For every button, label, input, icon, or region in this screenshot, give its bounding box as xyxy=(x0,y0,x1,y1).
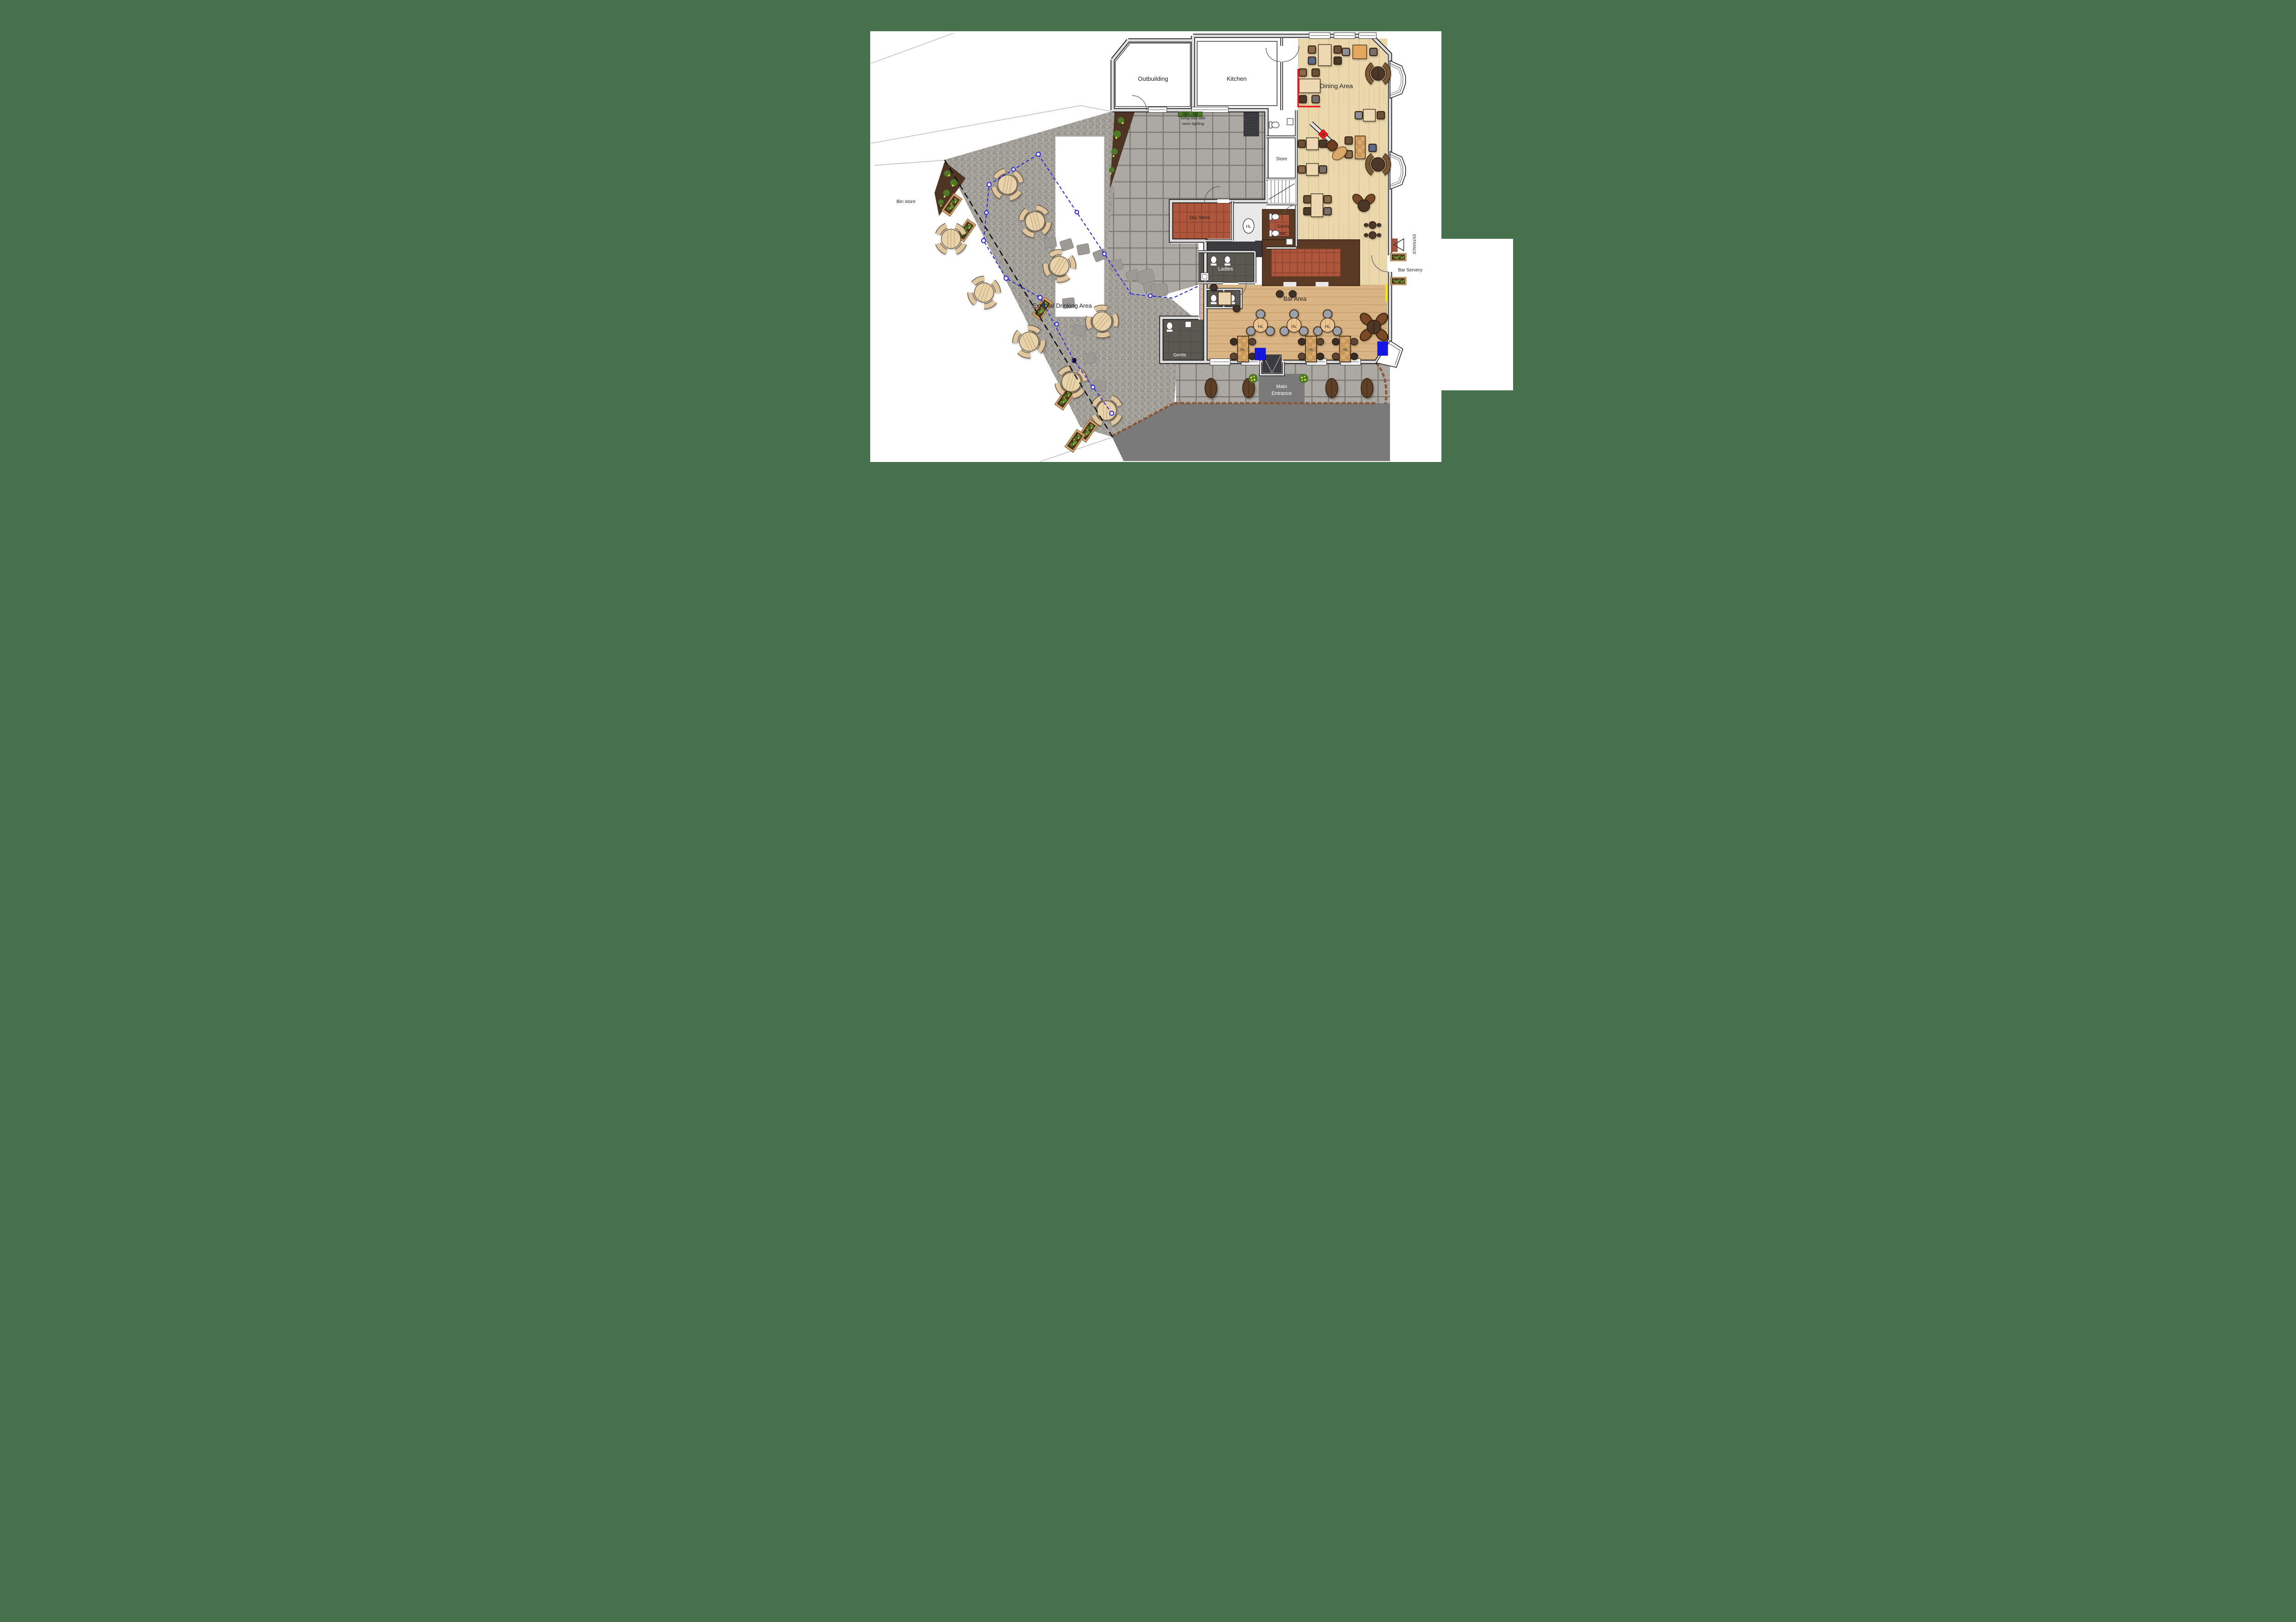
label-hl-circle: HL xyxy=(1246,224,1251,229)
living-wall-hedge xyxy=(1178,112,1203,117)
sheet-edge-white xyxy=(1441,239,1513,390)
label-hl-table-4: HL xyxy=(1241,347,1246,352)
label-hl-table-2: HL xyxy=(1291,324,1297,329)
lobby-mat-1 xyxy=(1205,242,1255,251)
neighbouring-building xyxy=(1055,136,1104,317)
entrance-flowers-right xyxy=(1299,374,1308,383)
label-outbuilding: Outbuilding xyxy=(1138,75,1168,82)
label-external-drinking-area: External Drinking Area xyxy=(1032,302,1092,309)
label-gents-wc-1: Gents xyxy=(1277,224,1290,229)
awp-machine-2 xyxy=(1378,342,1388,355)
label-hl-table-3: HL xyxy=(1325,324,1330,329)
label-dining-area: Dining Area xyxy=(1320,82,1353,90)
floor-plan-canvas: living wall with neon lighting Outbuildi… xyxy=(783,0,1513,487)
staircase xyxy=(1268,180,1295,203)
label-gents-wc-2: WC xyxy=(1280,231,1288,237)
label-bin-store: Bin store xyxy=(896,199,916,204)
label-hl-table-6: HL xyxy=(1343,347,1348,352)
dry-store-floor xyxy=(1173,203,1231,239)
living-wall-note-line2: neon lighting xyxy=(1182,121,1204,126)
label-dry-store: Dry Store xyxy=(1190,215,1210,220)
entrance-flowers-left xyxy=(1249,374,1258,383)
label-kitchen: Kitchen xyxy=(1227,75,1246,82)
label-store: Store xyxy=(1276,157,1287,162)
label-hl-table-5: HL xyxy=(1309,347,1314,352)
label-fire-point: FP xyxy=(1321,134,1325,137)
label-main-entrance-1: Main xyxy=(1276,384,1287,389)
yard-mat xyxy=(1244,112,1259,136)
label-entrance-side: ENTRANCE xyxy=(1412,234,1416,254)
label-main-entrance-2: Entrance xyxy=(1272,391,1292,396)
label-ladies: Ladies xyxy=(1218,266,1233,272)
label-bar-area: Bar Area xyxy=(1283,295,1307,302)
label-gents: Gents xyxy=(1173,352,1186,358)
floor-plan: living wall with neon lighting Outbuildi… xyxy=(783,0,1513,487)
label-bar-servery: Bar Servery xyxy=(1398,268,1423,273)
label-hl-table-1: HL xyxy=(1258,324,1263,329)
outbuilding-room xyxy=(1115,43,1190,107)
label-awp: AWP xyxy=(1258,352,1261,358)
kitchen-room xyxy=(1197,41,1277,106)
yellow-marker xyxy=(1385,284,1388,301)
